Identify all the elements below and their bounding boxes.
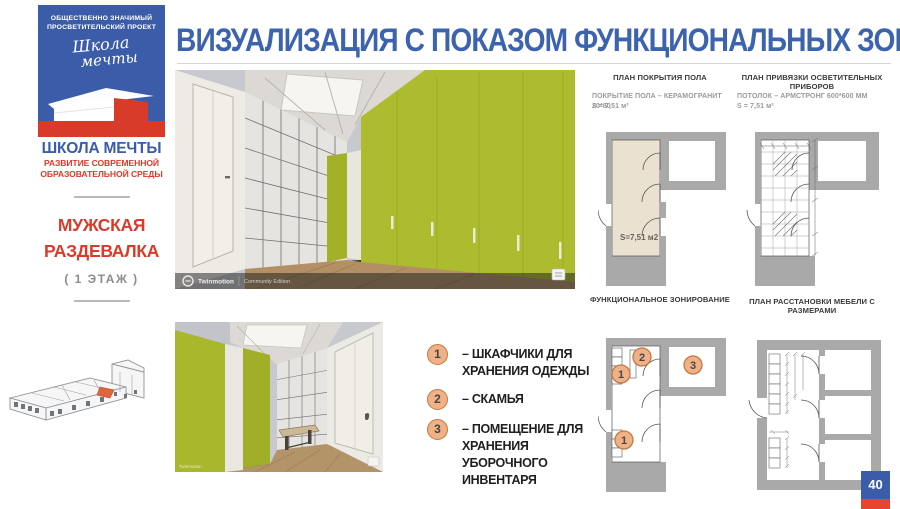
plan-floor-cover-caption2: S = 7,51 м²: [592, 102, 742, 112]
page-number-badge: 40: [861, 471, 890, 499]
floor-covering-plan-drawing: S=7,51 м2: [598, 126, 730, 292]
page-number-badge-accent: [861, 499, 890, 509]
legend-number-badge: 1: [427, 344, 448, 365]
area-label: S=7,51 м2: [620, 233, 659, 242]
render-quality-badge-icon: [552, 269, 565, 280]
svg-text:1: 1: [618, 369, 624, 381]
locker-symbols: [769, 354, 780, 468]
title-underline: [177, 63, 891, 64]
door-handle: [225, 176, 230, 178]
lighting-plan-drawing: [745, 126, 883, 292]
legend-number-badge: 3: [427, 419, 448, 440]
room-floor-label: ( 1 ЭТАЖ ): [20, 272, 183, 286]
legend-item-2: 2 – СКАМЬЯ: [427, 389, 602, 410]
render-locker-room-view2: Twinmotion: [175, 322, 383, 472]
plan-lighting-caption1: ПОТОЛОК – АРМСТРОНГ 600*600 ММ: [737, 92, 897, 102]
building-keyplan-isometric: [2, 356, 148, 436]
legend-item-text: – ПОМЕЩЕНИЕ ДЛЯ ХРАНЕНИЯ УБОРОЧНОГО ИНВЕ…: [462, 419, 600, 489]
page-title: ВИЗУАЛИЗАЦИЯ С ПОКАЗОМ ФУНКЦИОНАЛЬНЫХ ЗО…: [176, 22, 845, 59]
zoning-plan-drawing: 2 1 3 1: [598, 330, 730, 502]
logo-tagline: ОБЩЕСТВЕННО ЗНАЧИМЫЙ ПРОСВЕТИТЕЛЬСКИЙ ПР…: [38, 14, 165, 32]
svg-text:2: 2: [639, 352, 645, 364]
watermark-edition: Community Edition: [244, 279, 290, 285]
render-locker-room-view1: Twinmotion Community Edition: [175, 70, 575, 289]
legend-item-1: 1 – ШКАФЧИКИ ДЛЯ ХРАНЕНИЯ ОДЕЖДЫ: [427, 344, 602, 380]
legend-item-3: 3 – ПОМЕЩЕНИЕ ДЛЯ ХРАНЕНИЯ УБОРОЧНОГО ИН…: [427, 419, 602, 489]
plan-furniture-title: ПЛАН РАССТАНОВКИ МЕБЕЛИ С РАЗМЕРАМИ: [726, 297, 898, 315]
legend-item-text: – ШКАФЧИКИ ДЛЯ ХРАНЕНИЯ ОДЕЖДЫ: [462, 344, 600, 380]
svg-text:1: 1: [621, 435, 627, 447]
brand-title: ШКОЛА МЕЧТЫ: [30, 140, 173, 158]
sidebar-divider-bottom: [74, 300, 130, 302]
plan-lighting-caption2: S = 7,51 м²: [737, 102, 897, 112]
room-title: МУЖСКАЯ РАЗДЕВАЛКА: [20, 212, 183, 264]
plan-floor-cover-title: ПЛАН ПОКРЫТИЯ ПОЛА: [585, 73, 735, 82]
brand-subtitle: РАЗВИТИЕ СОВРЕМЕННОЙ ОБРАЗОВАТЕЛЬНОЙ СРЕ…: [34, 158, 169, 179]
legend-number-badge: 2: [427, 389, 448, 410]
sidebar-divider-top: [74, 196, 130, 198]
slide: ОБЩЕСТВЕННО ЗНАЧИМЫЙ ПРОСВЕТИТЕЛЬСКИЙ ПР…: [0, 0, 900, 509]
render-quality-badge-icon: [368, 457, 379, 466]
svg-text:3: 3: [690, 360, 696, 372]
brand-logo-box: ОБЩЕСТВЕННО ЗНАЧИМЫЙ ПРОСВЕТИТЕЛЬСКИЙ ПР…: [38, 5, 165, 137]
legend: 1 – ШКАФЧИКИ ДЛЯ ХРАНЕНИЯ ОДЕЖДЫ 2 – СКА…: [427, 344, 602, 498]
plan-lighting-title: ПЛАН ПРИВЯЗКИ ОСВЕТИТЕЛЬНЫХ ПРИБОРОВ: [726, 73, 898, 91]
watermark-brand: Twinmotion: [198, 279, 234, 286]
school-building-icon: [38, 85, 165, 137]
logo-script-wordmark: Школа мечты: [37, 32, 166, 73]
plan-zoning-title: ФУНКЦИОНАЛЬНОЕ ЗОНИРОВАНИЕ: [580, 295, 740, 304]
watermark-small: Twinmotion: [179, 464, 202, 469]
legend-item-text: – СКАМЬЯ: [462, 389, 600, 408]
